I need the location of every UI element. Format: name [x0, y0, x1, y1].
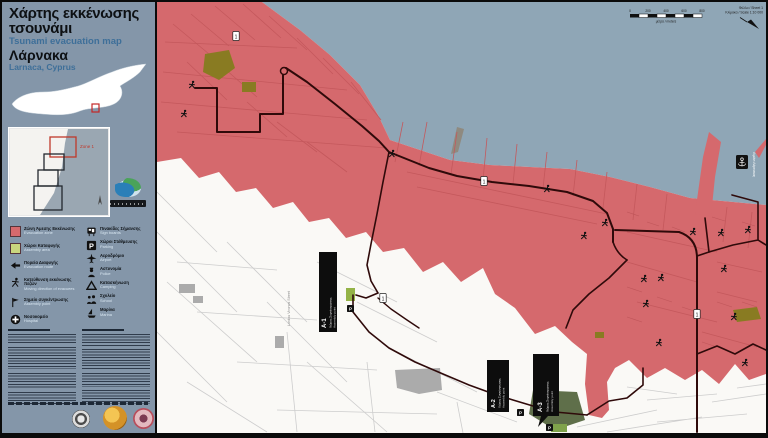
agency-seal-red: [133, 408, 154, 429]
legend-label-en: Sign boards: [100, 231, 141, 235]
poster-title-greek-line2: τσουνάμι: [9, 21, 149, 36]
route-shield-number: 1: [235, 35, 238, 41]
legend-item-marina: Μαρίνα Marina: [86, 308, 152, 319]
inset-sheet-3: [38, 170, 58, 186]
legend-label-en: Assembly area: [24, 248, 60, 252]
legend-left-column: Ζώνη Άμεσης Εκκένωσης Evacuation zone Χώ…: [10, 226, 82, 325]
legend-item-hospital: Νοσοκομείο Hospital: [10, 314, 82, 325]
legend-item-evacuation-direction: Κατεύθυνση εκκένωσης πεζών Moving direct…: [10, 277, 82, 291]
sign-board-icon: [86, 226, 97, 237]
port-label: Λιμάνι Λάρνακας: [752, 152, 756, 178]
corner-note-line1: Φύλλο / Sheet 1: [739, 6, 763, 10]
legend-label-en: Parking: [100, 245, 137, 249]
legend-label-en: Evacuation zone: [24, 231, 75, 235]
facility-markers: P P P: [347, 305, 553, 431]
map-svg: 1 1 1 1 P P: [157, 2, 766, 433]
legend-label-en: Camping: [100, 285, 129, 289]
callout-id: A-2: [491, 399, 497, 408]
sheet-index-inset: Zone 1: [9, 128, 109, 216]
facility-marker: P: [517, 409, 524, 416]
svg-text:P: P: [89, 241, 94, 250]
callout-line1: Χώρος Συγκέντρωσης: [546, 381, 550, 412]
legend-right-column: Πινακίδες Σήμανσης Sign boards P Χώροι Σ…: [86, 226, 152, 319]
facility-marker: P: [546, 424, 553, 431]
assembly-area-swatch: [10, 243, 21, 254]
hospital-icon: [10, 314, 21, 325]
poster-title-english: Tsunami evacuation map: [9, 36, 149, 47]
scale-tick: 200: [645, 9, 651, 13]
callout-a2: A-2 Χώρος Συγκέντρωσης Assembly point: [487, 360, 509, 412]
scale-caption: μέτρα / meters: [656, 20, 677, 24]
callout-id: A-3: [538, 402, 544, 412]
facility-marker-letter: P: [548, 426, 551, 431]
facility-marker: P: [347, 305, 354, 312]
legend-label-en: Moving direction of evacuees: [24, 287, 82, 291]
corner-note-line2: Κλίμακα / Scale 1:10 000: [725, 11, 763, 15]
route-shield: 1: [233, 32, 239, 41]
legend-item-school: Σχολείο School: [86, 294, 152, 305]
school-icon: [86, 294, 97, 305]
buildings: [179, 284, 499, 410]
scale-tick: 400: [663, 9, 669, 13]
camping-icon: [86, 280, 97, 291]
organization-logo: [115, 178, 141, 197]
parking-icon: P: [86, 240, 97, 251]
scale-tick: 600: [681, 9, 687, 13]
poster-title-greek-line1: Χάρτης εκκένωσης: [9, 6, 149, 21]
sidebar: Χάρτης εκκένωσης τσουνάμι Tsunami evacua…: [2, 2, 155, 433]
tsunami-evacuation-map-poster: Χάρτης εκκένωσης τσουνάμι Tsunami evacua…: [0, 0, 768, 438]
body-text-column-english: [82, 329, 150, 408]
evacuation-zone-swatch: [10, 226, 21, 237]
legend-label-en: Police: [100, 272, 121, 276]
callout-id: A-1: [322, 318, 328, 328]
city-name-greek: Λάρνακα: [9, 48, 149, 63]
inset-zone-label: Zone 1: [80, 144, 95, 149]
evacuee-runner-icon: [10, 277, 21, 288]
assembly-point-flag-icon: [10, 297, 21, 308]
legend-item-police: Αστυνομία Police: [86, 267, 152, 278]
route-shield: 1: [481, 177, 487, 186]
legend-label-en: Evacuation route: [24, 265, 58, 269]
legend-item-camping: Κατασκήνωση Camping: [86, 280, 152, 291]
evacuation-map-canvas: 1 1 1 1 P P: [155, 2, 766, 433]
airport-icon: [86, 253, 97, 264]
route-shield: 1: [380, 294, 386, 303]
cyprus-locator-map: [4, 62, 154, 124]
scale-tick: 0: [629, 9, 631, 13]
legend-label-en: School: [100, 299, 115, 303]
street-name-label: Lordou Vironos Street: [287, 291, 291, 326]
legend-item-airport: Αεροδρόμιο Airport: [86, 253, 152, 264]
legend-item-assembly-point: Σημείο συγκέντρωσης Assembly point: [10, 297, 82, 308]
route-shield: 1: [694, 310, 700, 319]
legend-label-en: Airport: [100, 258, 124, 262]
agency-seal-gray: [72, 410, 90, 428]
legend-item-evacuation-route: Πορεία Διαφυγής Evacuation route: [10, 260, 82, 271]
credits-caption: [8, 402, 148, 405]
legend-item-parking: P Χώροι Στάθμευσης Parking: [86, 240, 152, 251]
legend-label-en: Assembly point: [24, 302, 68, 306]
body-text-column-greek: [8, 329, 76, 408]
route-shield-number: 1: [382, 297, 385, 303]
scale-tick: 800: [699, 9, 705, 13]
callout-a1: A-1 Χώρος Συγκέντρωσης Assembly point: [319, 252, 337, 332]
callout-line2: Assembly point: [333, 307, 337, 328]
callout-line2: Assembly point: [502, 387, 506, 408]
facility-marker-letter: P: [519, 411, 522, 416]
sheet-index-map: Zone 1: [10, 129, 108, 215]
legend-item-assembly-area: Χώροι Καταφυγής Assembly area: [10, 243, 82, 254]
marina-icon: [86, 308, 97, 319]
cyprus-island-shape: [12, 64, 146, 115]
callout-line2: Assembly point: [550, 391, 554, 412]
evacuation-route-arrow-icon: [10, 260, 21, 271]
police-icon: [86, 267, 97, 278]
agency-seal-gold: [103, 406, 127, 430]
legend-item-evacuation-zone: Ζώνη Άμεσης Εκκένωσης Evacuation zone: [10, 226, 82, 237]
route-shield-number: 1: [483, 180, 486, 186]
route-shield-number: 1: [696, 313, 699, 319]
legend-item-sign-boards: Πινακίδες Σήμανσης Sign boards: [86, 226, 152, 237]
legend-label-en: Marina: [100, 313, 115, 317]
facility-marker-letter: P: [349, 307, 352, 312]
port-icon: [736, 155, 748, 169]
legend-label-en: Hospital: [24, 319, 48, 323]
organization-logo-text: [110, 200, 146, 207]
